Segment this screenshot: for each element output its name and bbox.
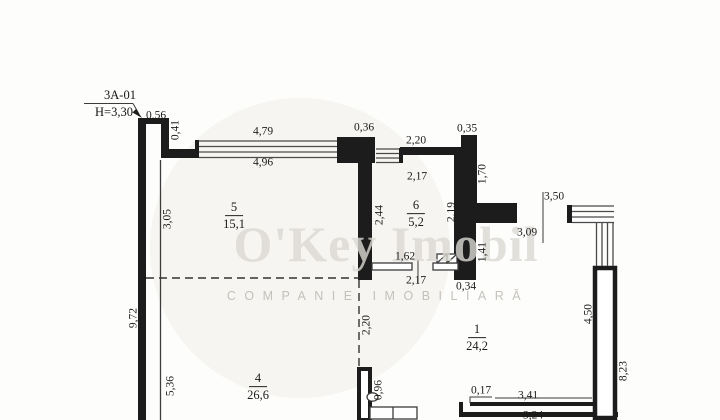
room-number: 5 [225, 200, 243, 216]
watermark-subtitle-text: COMPANIE IMOBILIARĂ [227, 289, 529, 303]
dim-0_36: 0,36 [354, 122, 374, 134]
room-area: 5,2 [407, 216, 425, 230]
room-number: 4 [249, 371, 267, 387]
window-right-horizontal [572, 206, 614, 223]
floor-plan-drawing [0, 0, 720, 420]
dim-2_17-bottom: 2,17 [406, 275, 426, 287]
dim-0_17: 0,17 [471, 385, 491, 397]
dim-1_41: 1,41 [477, 242, 489, 262]
room-1-label: 1 24,2 [466, 322, 488, 354]
watermark-brand-text: O'Key Imobil [233, 215, 538, 273]
wall-bottom-right-top-face [470, 402, 597, 406]
room-4-label: 4 26,6 [247, 371, 269, 403]
dim-2_19: 2,19 [446, 202, 458, 222]
dim-3_50: 3,50 [544, 191, 564, 203]
room-number: 1 [468, 322, 486, 338]
room-number: 6 [407, 198, 425, 214]
dim-0_96: 0,96 [373, 380, 385, 400]
dim-4_96: 4,96 [253, 157, 273, 169]
dim-0_41: 0,41 [170, 120, 182, 140]
wall-right-outer [595, 268, 615, 418]
room-area: 15,1 [223, 218, 245, 232]
window-post [195, 140, 199, 158]
dim-2_44: 2,44 [374, 205, 386, 225]
room-5-label: 5 15,1 [223, 200, 245, 232]
dim-8_23: 8,23 [618, 361, 630, 381]
wall-room6-top [400, 147, 462, 155]
dim-2_20-split: 2,20 [361, 315, 373, 335]
unit-label: 3А-01 [104, 89, 136, 102]
dim-3_09: 3,09 [517, 227, 537, 239]
dim-0_56: 0,56 [146, 110, 166, 122]
dim-4_79: 4,79 [253, 126, 273, 138]
room-area: 24,2 [466, 340, 488, 354]
dim-2_20-top: 2,20 [406, 135, 426, 147]
window-post [567, 205, 572, 223]
dim-1_70: 1,70 [477, 164, 489, 184]
ceiling-height-label: Н=3,30 [95, 106, 133, 119]
dim-0_34: 0,34 [456, 281, 476, 293]
wall-left-outer [138, 118, 146, 420]
wall-bottom-right-step [459, 402, 463, 417]
room-area: 26,6 [247, 389, 269, 403]
dim-4_50: 4,50 [583, 304, 595, 324]
dim-1_62: 1,62 [395, 251, 415, 263]
window-post [399, 148, 403, 163]
dim-9_72: 9,72 [128, 308, 140, 328]
room-6-label: 6 5,2 [407, 198, 425, 230]
dim-0_35: 0,35 [457, 123, 477, 135]
dim-3_41: 3,41 [518, 390, 538, 402]
dim-3_05: 3,05 [162, 209, 174, 229]
dim-2_17-top: 2,17 [407, 171, 427, 183]
dim-3_24: 3,24 [523, 410, 543, 420]
window-right-vertical [597, 223, 614, 266]
wall-top-left [161, 149, 199, 158]
floor-plan-canvas: 3А-01 Н=3,30 5 15,1 6 5,2 4 26,6 1 24,2 … [0, 0, 720, 420]
dim-5_36: 5,36 [165, 376, 177, 396]
